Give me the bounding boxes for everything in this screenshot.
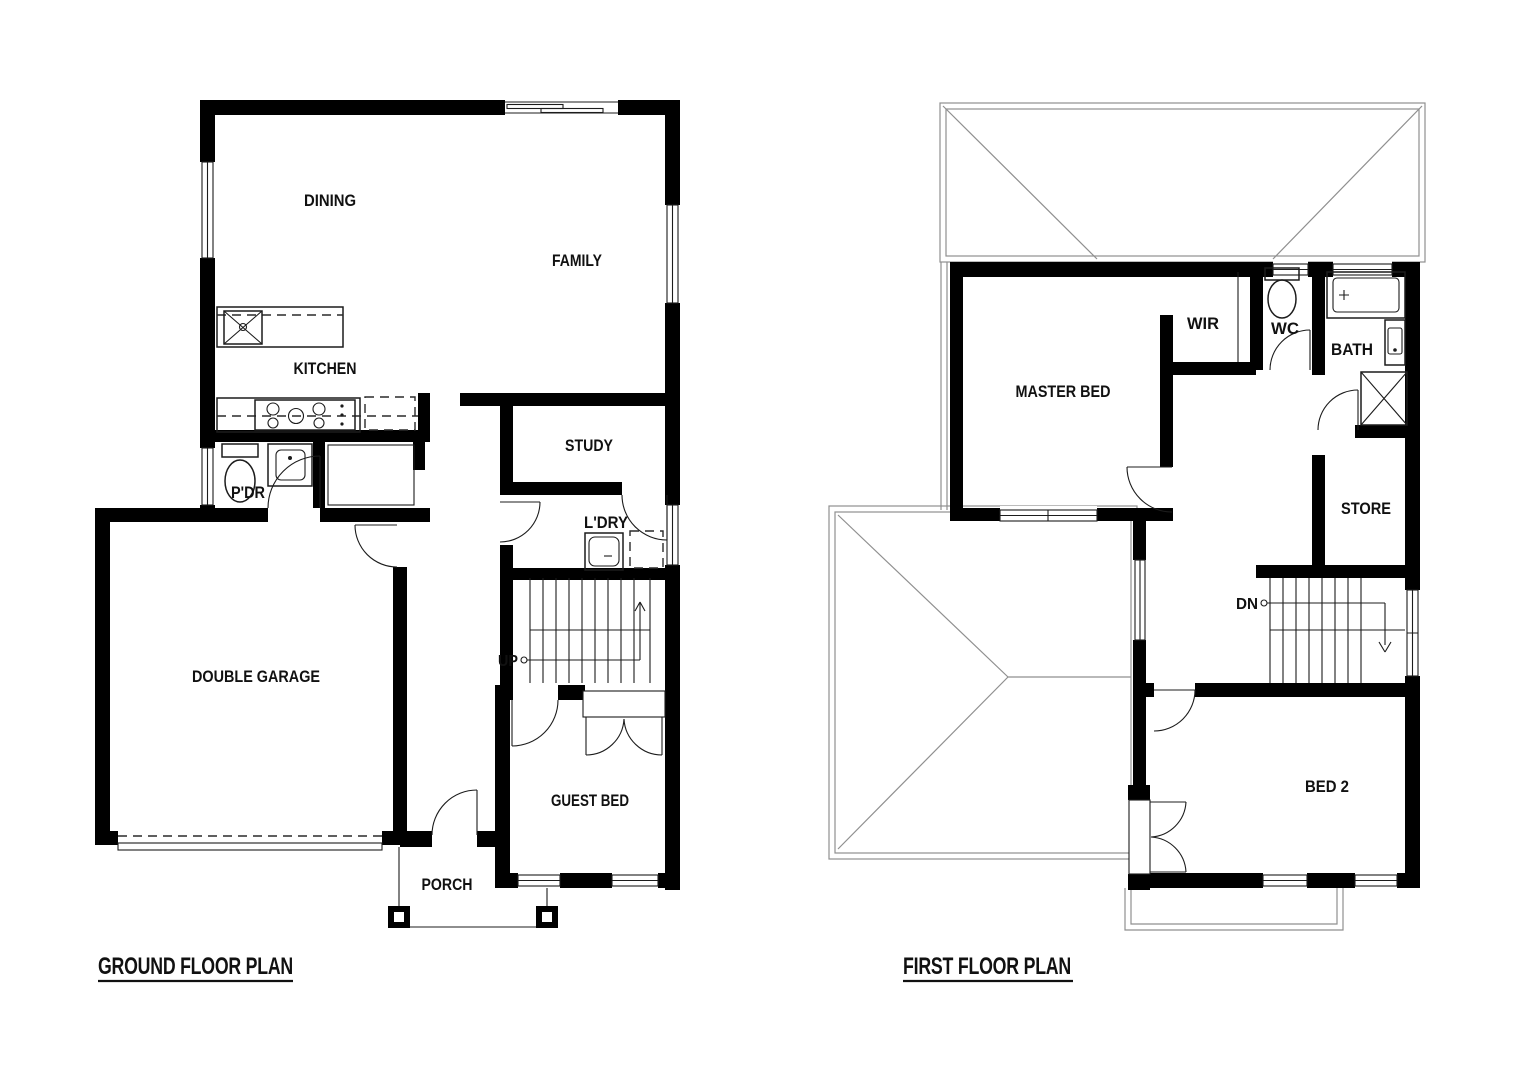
- pdr-window: [199, 448, 216, 505]
- room-label-master-bed: MASTER BED: [1016, 382, 1111, 401]
- bed2-door: [1154, 690, 1195, 731]
- hall-corridor-door: [500, 502, 540, 542]
- room-label-guest-bed: GUEST BED: [551, 791, 629, 810]
- garage-door-internal: [355, 525, 397, 567]
- first-floor-title-text: FIRST FLOOR PLAN: [903, 953, 1071, 980]
- kitchen-island: [217, 307, 343, 347]
- room-label-porch: PORCH: [422, 875, 473, 894]
- bath-window: [1333, 260, 1392, 277]
- room-label-wc: WC: [1271, 319, 1299, 338]
- master-bed-window: [1000, 506, 1097, 523]
- room-label-family: FAMILY: [552, 251, 603, 270]
- bed2-window-1: [1263, 872, 1307, 889]
- room-label-garage: DOUBLE GARAGE: [192, 667, 320, 686]
- guest-bed-window-2: [612, 872, 658, 889]
- bed2-wardrobe: [1129, 800, 1186, 874]
- master-bed-door: [1127, 467, 1172, 512]
- dining-window: [199, 162, 216, 258]
- room-label-pdr: P'DR: [231, 483, 265, 502]
- room-label-bath: BATH: [1331, 340, 1373, 359]
- laundry-door: [622, 495, 667, 540]
- floor-plan-sheet: DINING FAMILY KITCHEN STUDY P'DR L'DRY U…: [0, 0, 1536, 1087]
- stairs-down-label: DN: [1236, 596, 1258, 613]
- shower: [1361, 372, 1407, 425]
- stairs-down: [1261, 578, 1405, 683]
- first-floor-plan: MASTER BED WIR WC BATH STORE DN BED 2 FI…: [829, 103, 1425, 981]
- sliding-door: [505, 100, 618, 115]
- bed2-window-2: [1355, 872, 1397, 889]
- room-label-study: STUDY: [565, 436, 614, 455]
- laundry-appliance-dashed: [630, 531, 663, 568]
- ground-floor-walls: [95, 100, 680, 890]
- stair-landing-window: [1404, 590, 1421, 676]
- floor-plan-drawing: DINING FAMILY KITCHEN STUDY P'DR L'DRY U…: [0, 0, 1536, 1087]
- ground-floor-title-text: GROUND FLOOR PLAN: [98, 953, 293, 980]
- room-label-kitchen: KITCHEN: [294, 359, 357, 378]
- roof-outline-bottom: [1125, 888, 1343, 930]
- stairs-up-label: UP: [498, 653, 518, 670]
- dishwasher-dashed: [365, 397, 415, 430]
- hall-closet: [328, 445, 414, 505]
- guest-bed-door: [512, 700, 558, 746]
- front-entry-door: [432, 790, 477, 835]
- bath-vanity: [1385, 320, 1405, 365]
- hall-window: [1132, 560, 1148, 640]
- roof-outline-top: [940, 103, 1425, 510]
- room-label-wir: WIR: [1187, 314, 1219, 333]
- room-label-dining: DINING: [304, 191, 356, 210]
- kitchen-bench-cooktop: [217, 398, 418, 432]
- stairs-up: [521, 578, 650, 683]
- ground-floor-plan: DINING FAMILY KITCHEN STUDY P'DR L'DRY U…: [95, 100, 681, 981]
- ground-floor-title: GROUND FLOOR PLAN: [98, 953, 293, 981]
- guest-bed-wardrobe: [583, 691, 665, 755]
- bathtub: [1327, 272, 1405, 318]
- roof-outline-left: [829, 506, 1137, 859]
- laundry-trough: [585, 533, 623, 570]
- first-floor-title: FIRST FLOOR PLAN: [903, 953, 1073, 981]
- room-label-bed2: BED 2: [1305, 777, 1349, 796]
- bath-door: [1318, 390, 1358, 430]
- guest-bed-window-1: [518, 872, 560, 889]
- family-window: [664, 205, 681, 303]
- garage-roller-door: [118, 836, 382, 850]
- room-label-store: STORE: [1341, 499, 1391, 518]
- room-label-ldry: L'DRY: [584, 513, 629, 532]
